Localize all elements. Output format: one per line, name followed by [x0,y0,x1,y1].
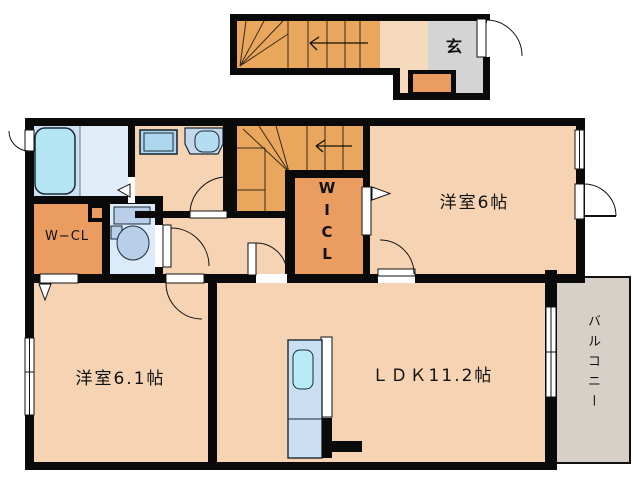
west6-exterior-doorway [575,184,584,219]
washroom-door-leaf [190,211,227,218]
west6-window [575,130,584,169]
west6-door-leaf [378,269,415,276]
ldk-balcony-window [546,307,556,397]
wcl-notch [92,208,102,218]
room-west6-label: 洋室6帖 [412,188,537,213]
ldk-door-leaf [248,243,256,275]
entrance-door-leaf [477,19,486,57]
shoe-cabinet [408,70,456,96]
room-west61-label: 洋室6.1帖 [48,364,193,389]
wcl-label: W−CL [33,229,101,244]
genkan-label: 玄 [446,33,462,57]
wicl-label: W I C L [316,177,338,265]
bathtub-icon [35,128,75,194]
entrance-block [230,14,522,100]
ldk-doorway [256,274,287,283]
wicl-char-c: C [321,221,332,243]
wicl-door-leaf [362,187,371,235]
west61-window [25,338,34,415]
balcony-label: バルコニー [583,314,602,439]
wcl-door-leaf [40,274,78,283]
kitchen-sink-icon [293,350,313,389]
genkan-lower-floor [453,68,483,95]
entrance-landing-floor [380,19,428,71]
wicl-char-w: W [319,177,336,199]
ldk-label: ＬＤＫ11.2帖 [345,361,520,386]
wicl-char-l: L [322,243,332,265]
west6-exterior-door-arc [584,184,616,216]
main-block [9,118,630,470]
vanity-sink-icon [185,128,223,154]
toilet-door-leaf [163,225,171,267]
toilet-doorway [155,225,163,267]
bathroom-panel [80,126,128,196]
west61-door-leaf [166,274,204,283]
wicl-char-i: I [324,199,330,221]
floor-plan-canvas: 玄 W I C L W−CL 洋室6帖 洋室6.1帖 ＬＤＫ11.2帖 バルコニ… [0,0,638,480]
bathroom-window [9,130,34,151]
entrance-door-arc [486,20,522,56]
entrance-door [477,19,522,57]
washing-machine-icon [140,130,177,154]
